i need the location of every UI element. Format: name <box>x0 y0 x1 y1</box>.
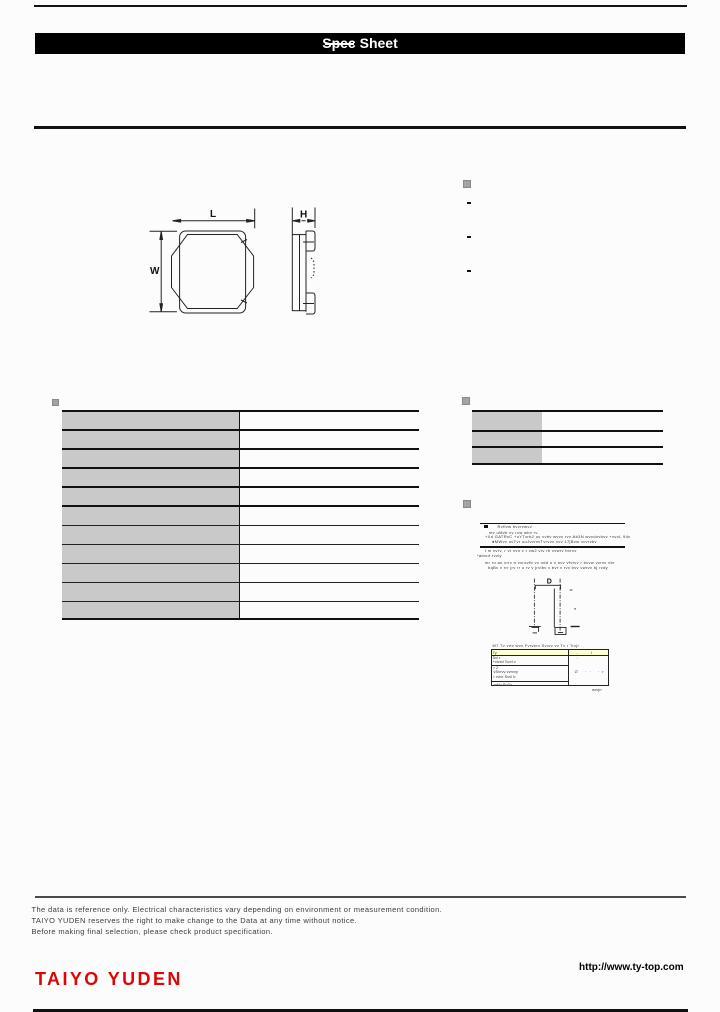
svg-text:W: W <box>150 266 160 277</box>
svg-text:D: D <box>547 579 552 586</box>
svg-text:H: H <box>300 210 307 221</box>
svg-text:L: L <box>210 209 216 220</box>
